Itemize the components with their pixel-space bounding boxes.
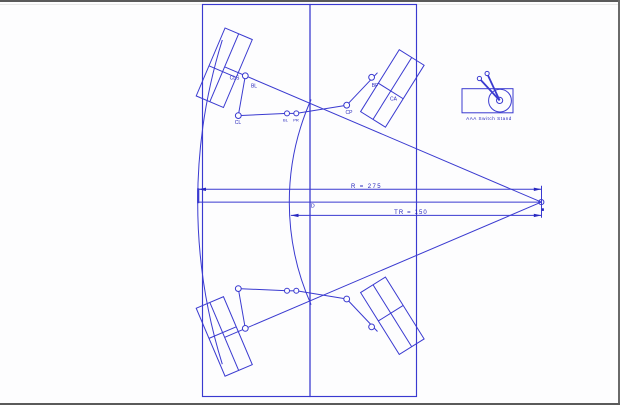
svg-text:CL: CL	[235, 120, 242, 126]
svg-text:CP: CP	[346, 110, 354, 116]
svg-text:D: D	[311, 204, 315, 210]
svg-text:BL: BL	[283, 118, 289, 123]
svg-text:AAA Switch Stand: AAA Switch Stand	[466, 116, 512, 121]
svg-text:R = 275: R = 275	[351, 184, 382, 190]
svg-text:CA: CA	[390, 97, 398, 103]
svg-text:BF: BF	[372, 83, 378, 89]
svg-text:CLS: CLS	[230, 76, 240, 82]
svg-text:PR: PR	[293, 118, 299, 123]
svg-text:BL: BL	[251, 84, 257, 90]
svg-text:TR = 150: TR = 150	[394, 210, 428, 216]
